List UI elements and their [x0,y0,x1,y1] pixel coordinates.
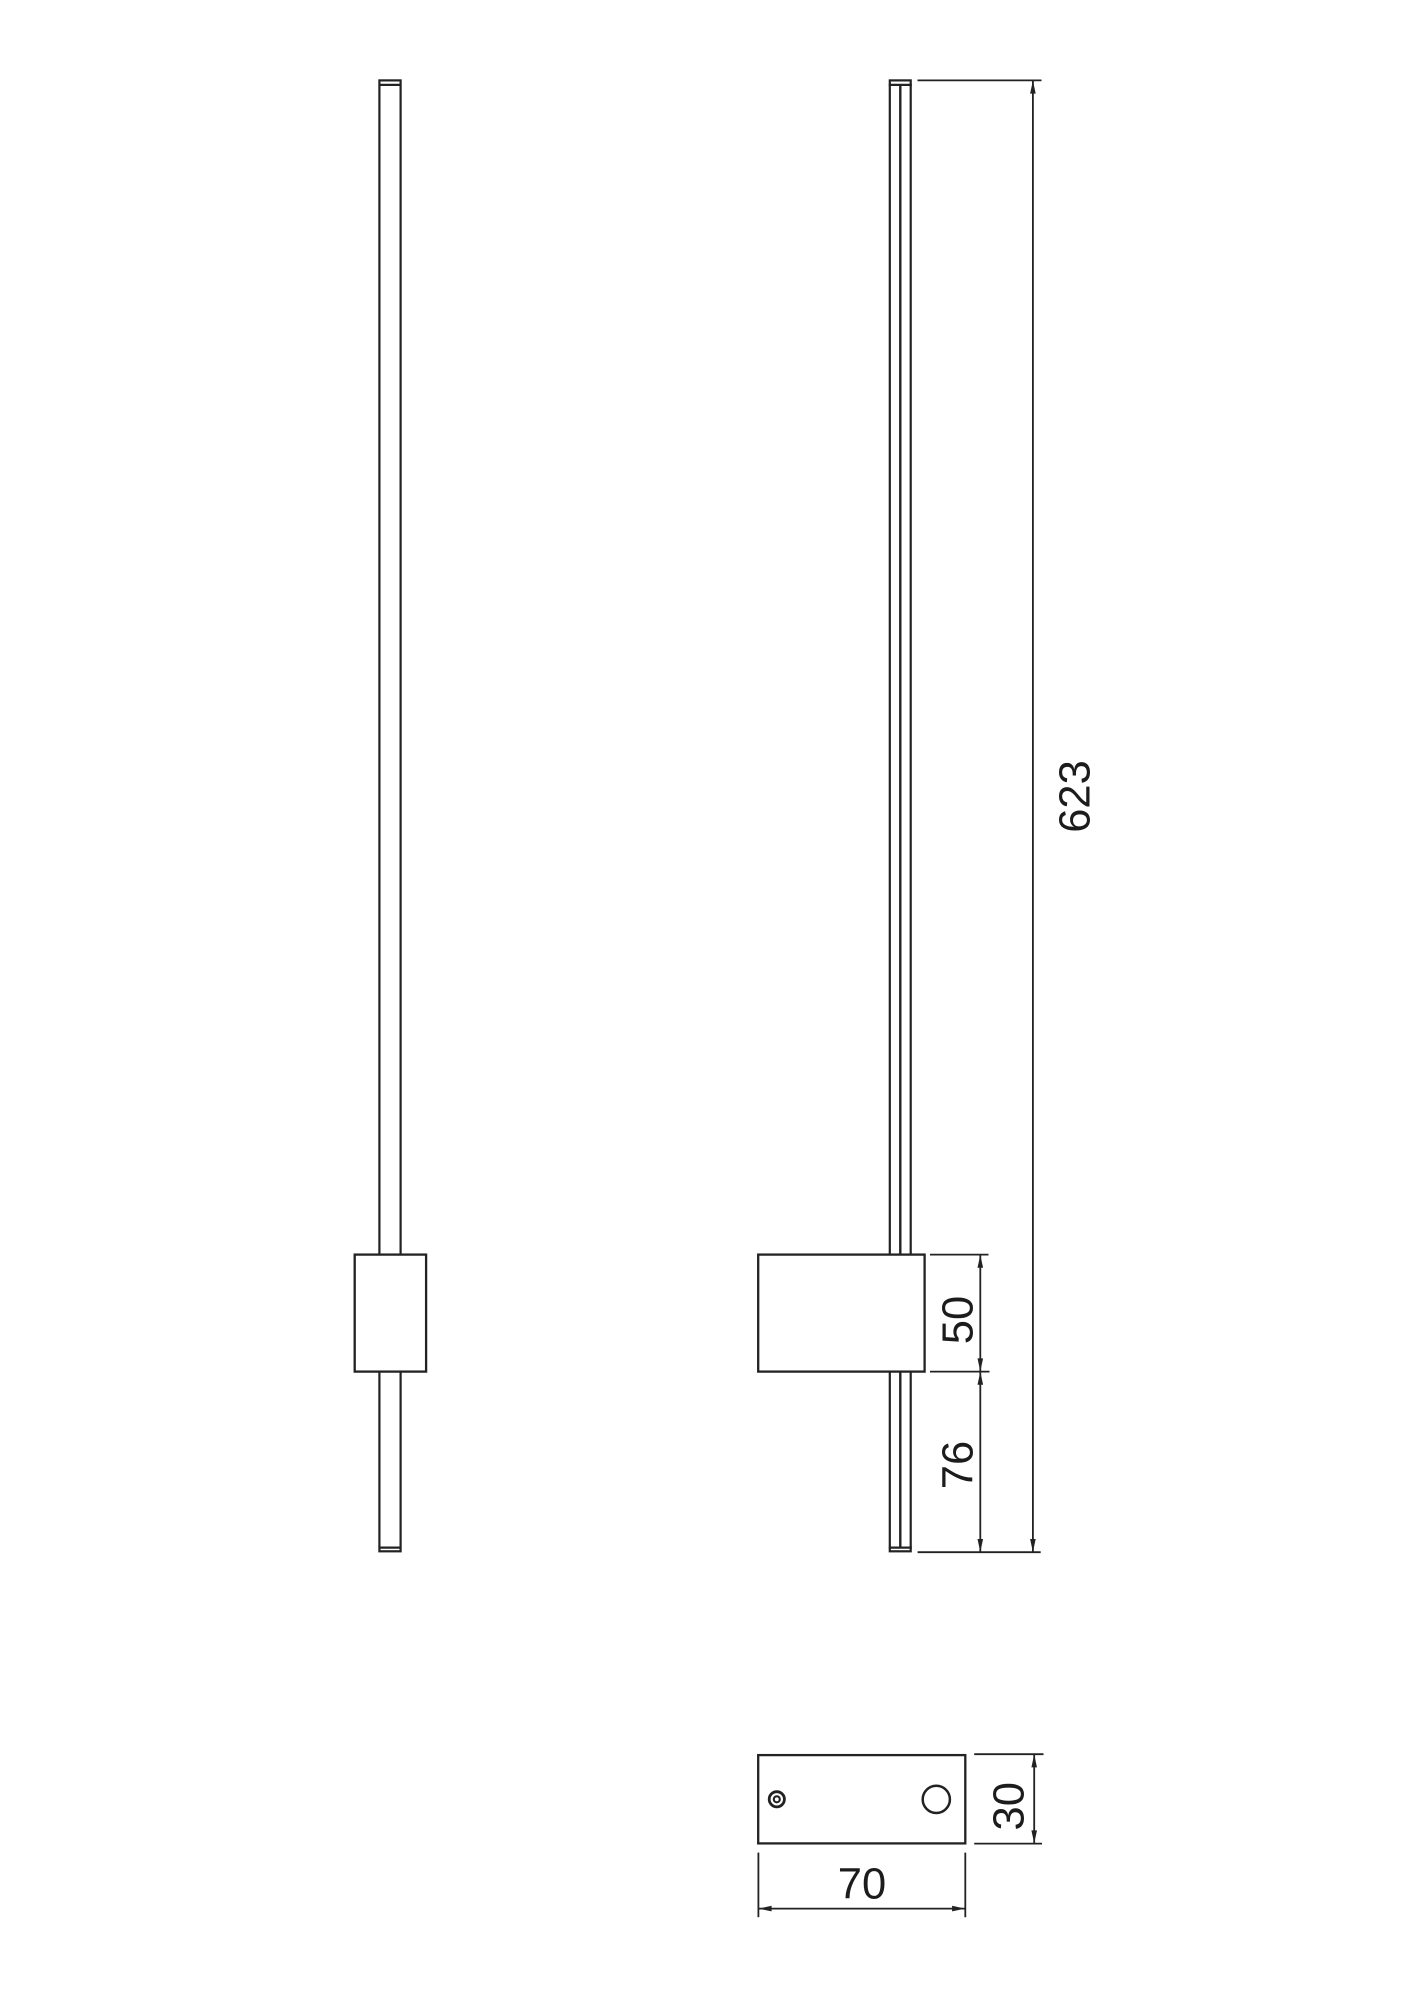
svg-text:50: 50 [935,1296,983,1344]
svg-text:30: 30 [986,1782,1034,1830]
svg-text:76: 76 [935,1441,983,1489]
svg-text:623: 623 [1052,760,1100,833]
svg-text:70: 70 [838,1860,886,1908]
